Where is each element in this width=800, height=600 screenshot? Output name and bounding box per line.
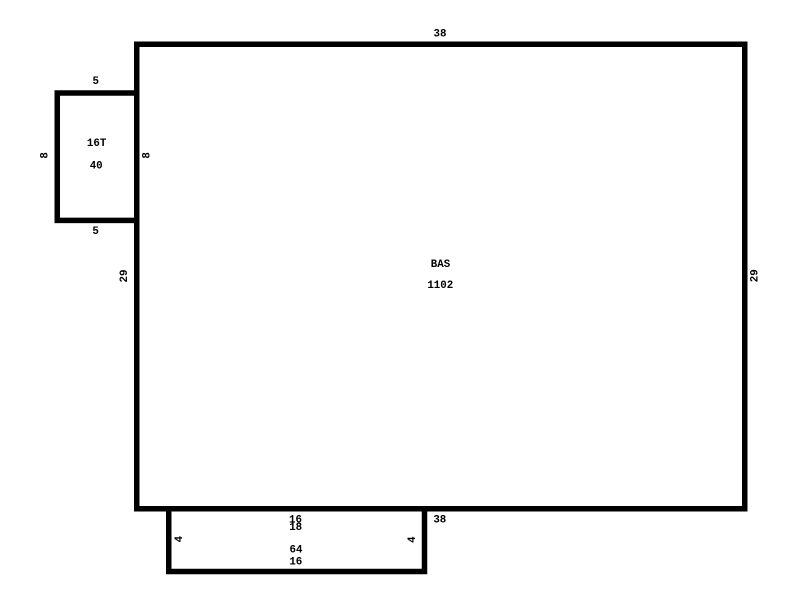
svg-text:16: 16 — [289, 557, 302, 569]
svg-text:38: 38 — [433, 514, 446, 526]
svg-text:16T: 16T — [87, 138, 107, 150]
svg-text:40: 40 — [90, 160, 103, 172]
svg-text:64: 64 — [290, 544, 303, 556]
svg-text:4: 4 — [407, 536, 419, 543]
svg-text:18: 18 — [289, 522, 302, 534]
svg-text:38: 38 — [434, 28, 447, 40]
svg-text:1102: 1102 — [427, 280, 453, 292]
svg-text:BAS: BAS — [431, 259, 451, 271]
svg-text:4: 4 — [174, 535, 186, 542]
svg-text:8: 8 — [142, 152, 154, 158]
svg-text:29: 29 — [750, 269, 762, 282]
svg-text:29: 29 — [119, 270, 131, 283]
svg-text:5: 5 — [92, 226, 98, 238]
svg-text:5: 5 — [93, 76, 99, 88]
svg-text:8: 8 — [40, 152, 52, 158]
